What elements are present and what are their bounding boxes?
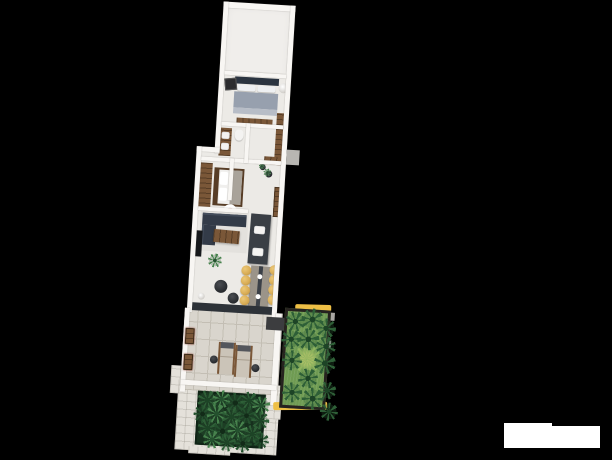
ac-unit — [286, 150, 300, 166]
island-sink — [254, 226, 266, 235]
table-runner — [256, 266, 264, 308]
armchair-dark — [224, 78, 237, 91]
lounge-chair — [217, 342, 236, 375]
watermark-right — [552, 426, 600, 448]
pillow — [257, 86, 275, 93]
bed-1-foot — [233, 107, 277, 116]
sink — [221, 132, 229, 139]
render-canvas — [0, 0, 612, 460]
pillow — [220, 172, 229, 185]
pillow — [219, 188, 228, 201]
bottom-garden-bed — [195, 391, 266, 449]
lounge-chair — [234, 345, 253, 378]
floorplan-scene — [164, 0, 367, 460]
sink — [221, 143, 229, 150]
planter-box — [185, 328, 195, 345]
right-garden-grass — [279, 308, 331, 411]
pillow — [237, 84, 255, 91]
kitchen-island — [247, 213, 271, 264]
island-cooktop — [252, 248, 264, 257]
watermark-left — [504, 423, 552, 448]
coffee-table — [213, 229, 240, 244]
bed-1 — [233, 76, 279, 119]
planter-box — [183, 354, 193, 371]
